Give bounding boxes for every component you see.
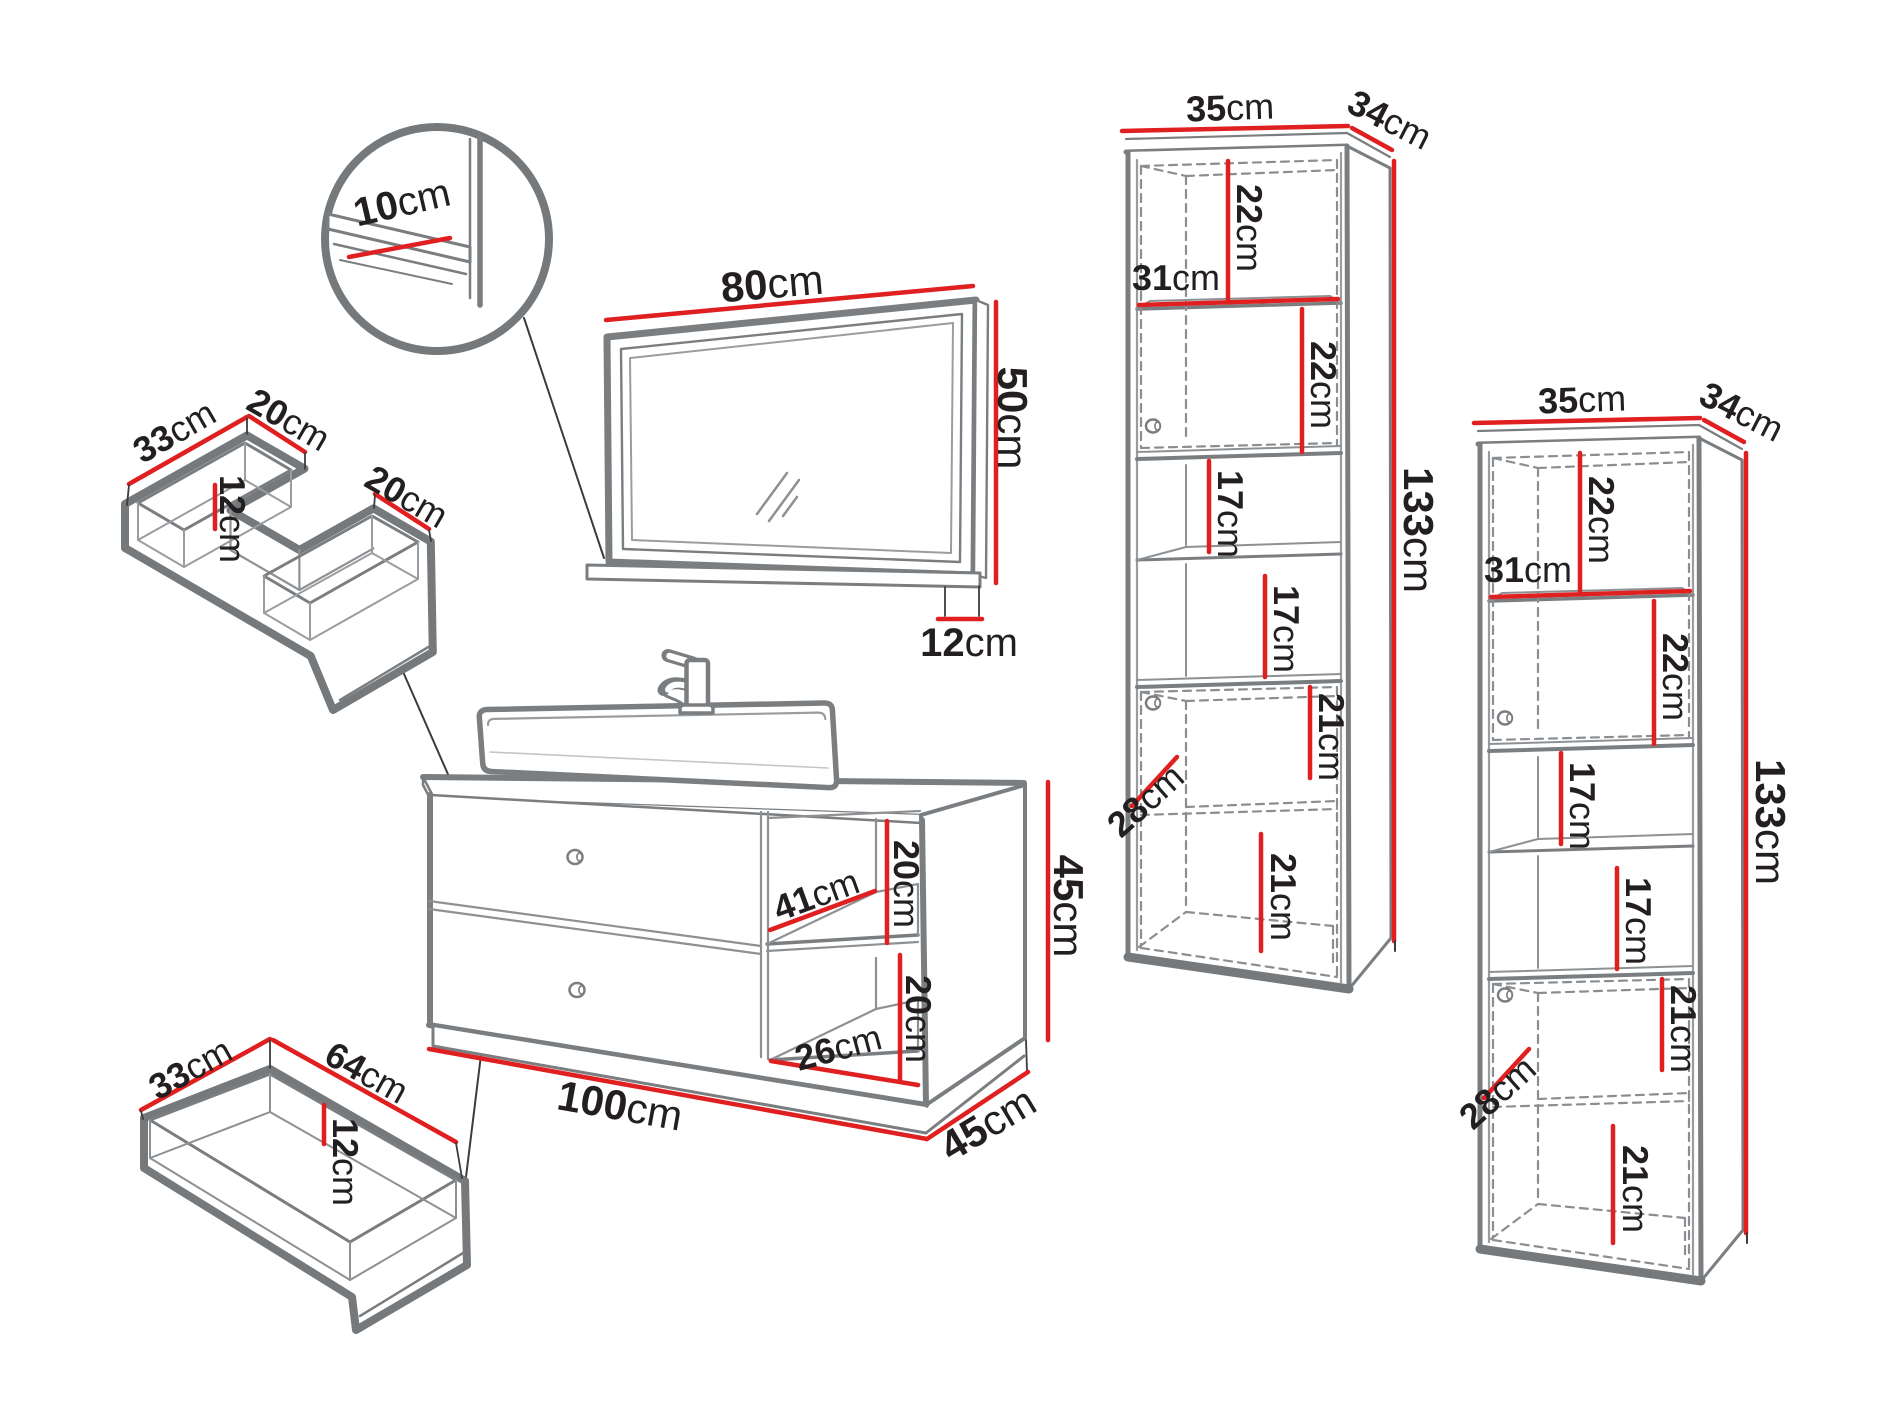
svg-text:12cm: 12cm — [325, 1118, 366, 1206]
svg-text:45cm: 45cm — [1045, 855, 1092, 958]
svg-text:17cm: 17cm — [1266, 585, 1307, 673]
svg-text:22cm: 22cm — [1303, 341, 1344, 429]
svg-text:22cm: 22cm — [1229, 184, 1270, 272]
svg-text:80cm: 80cm — [719, 256, 825, 312]
svg-text:21cm: 21cm — [1311, 693, 1352, 781]
svg-text:20cm: 20cm — [886, 840, 927, 928]
svg-text:17cm: 17cm — [1210, 470, 1251, 558]
svg-text:12cm: 12cm — [212, 475, 253, 563]
svg-text:20cm: 20cm — [898, 975, 939, 1063]
svg-text:21cm: 21cm — [1263, 853, 1304, 941]
svg-text:133cm: 133cm — [1395, 467, 1442, 593]
svg-text:12cm: 12cm — [920, 621, 1018, 665]
svg-text:31cm: 31cm — [1132, 257, 1220, 298]
svg-text:35cm: 35cm — [1185, 85, 1274, 129]
svg-text:50cm: 50cm — [989, 367, 1036, 470]
